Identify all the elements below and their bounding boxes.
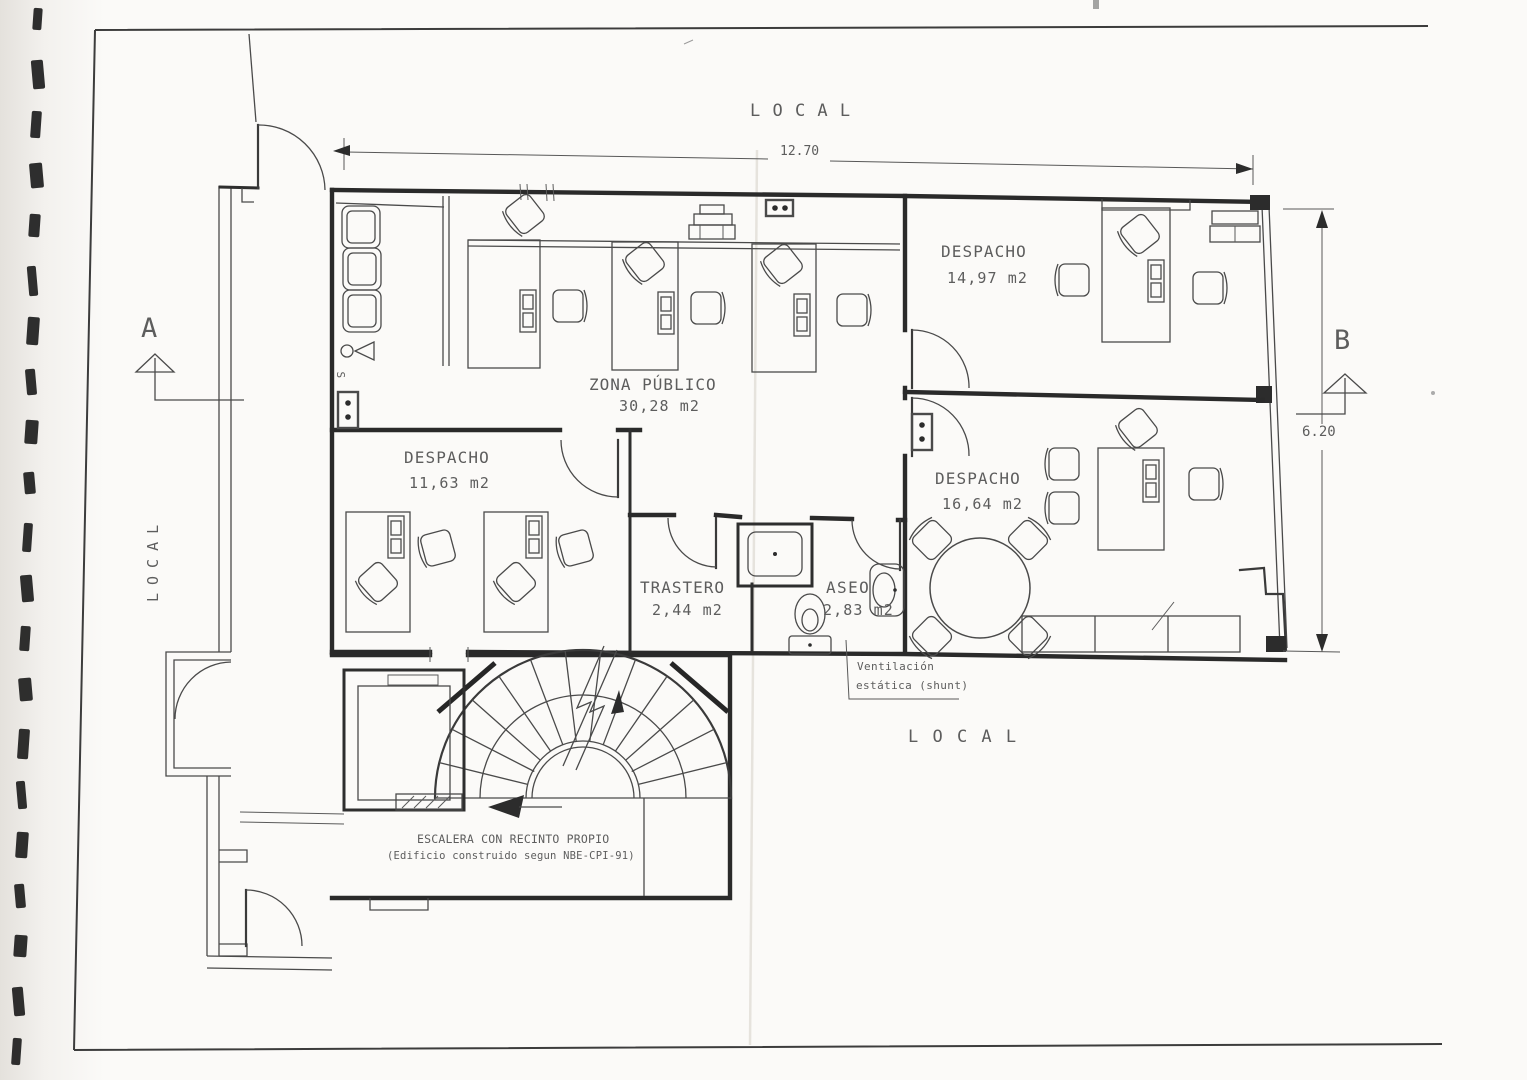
interior-walls: [332, 196, 1263, 652]
room-label-aseo: ASEO: [826, 580, 870, 597]
room-area-despacho-right: 16,64 m2: [942, 497, 1023, 513]
scanned-floorplan-page: L O C A L 12.70 A B 6.20 DESPACHO 14,97 …: [0, 0, 1527, 1080]
furniture-zona-publico: [342, 192, 900, 372]
floor-plan-drawing: [0, 0, 1527, 1080]
section-marker-a-label: A: [141, 315, 157, 343]
room-label-despacho-right: DESPACHO: [935, 471, 1021, 488]
annotation-escalera-2: (Edificio construido segun NBE-CPI-91): [387, 851, 635, 862]
corridor-walls: [166, 186, 344, 970]
room-label-despacho-left: DESPACHO: [404, 450, 490, 467]
annotation-escalera-1: ESCALERA CON RECINTO PROPIO: [417, 833, 609, 845]
annotation-ventilacion-2: estática (shunt): [856, 680, 968, 692]
section-marker-b-label: B: [1334, 327, 1350, 355]
room-area-despacho-top: 14,97 m2: [947, 271, 1028, 287]
room-label-trastero: TRASTERO: [640, 580, 725, 597]
label-local-bottom: L O C A L: [908, 729, 1018, 747]
room-area-trastero: 2,44 m2: [652, 603, 723, 619]
printer-symbol: [689, 205, 735, 239]
exterior-walls: [332, 184, 1285, 660]
label-local-left: LOCAL: [146, 462, 162, 602]
dimension-width-value: 12.70: [780, 145, 819, 159]
annotation-ventilacion-1: Ventilación: [857, 661, 934, 673]
furniture-despacho-left: [346, 512, 595, 632]
furniture-despacho-top: [1055, 208, 1260, 342]
room-label-despacho-top: DESPACHO: [941, 244, 1027, 261]
party-wall-upper: [249, 34, 256, 122]
room-area-aseo: 2,83 m2: [823, 603, 894, 619]
label-local-top: L O C A L: [750, 103, 851, 121]
section-marker-b-arrow: [1296, 374, 1366, 414]
switch-label: S: [335, 371, 347, 378]
shunt-shaft: [738, 524, 812, 586]
room-area-zona-publico: 30,28 m2: [619, 399, 700, 415]
room-label-zona-publico: ZONA PÚBLICO: [589, 377, 717, 394]
room-area-despacho-left: 11,63 m2: [409, 476, 490, 492]
glazed-facade: [1240, 195, 1287, 652]
dimension-depth-value: 6.20: [1302, 425, 1336, 440]
valve-symbol: [341, 342, 374, 360]
section-marker-a-arrow: [136, 354, 244, 400]
furniture-despacho-right: [907, 406, 1240, 661]
